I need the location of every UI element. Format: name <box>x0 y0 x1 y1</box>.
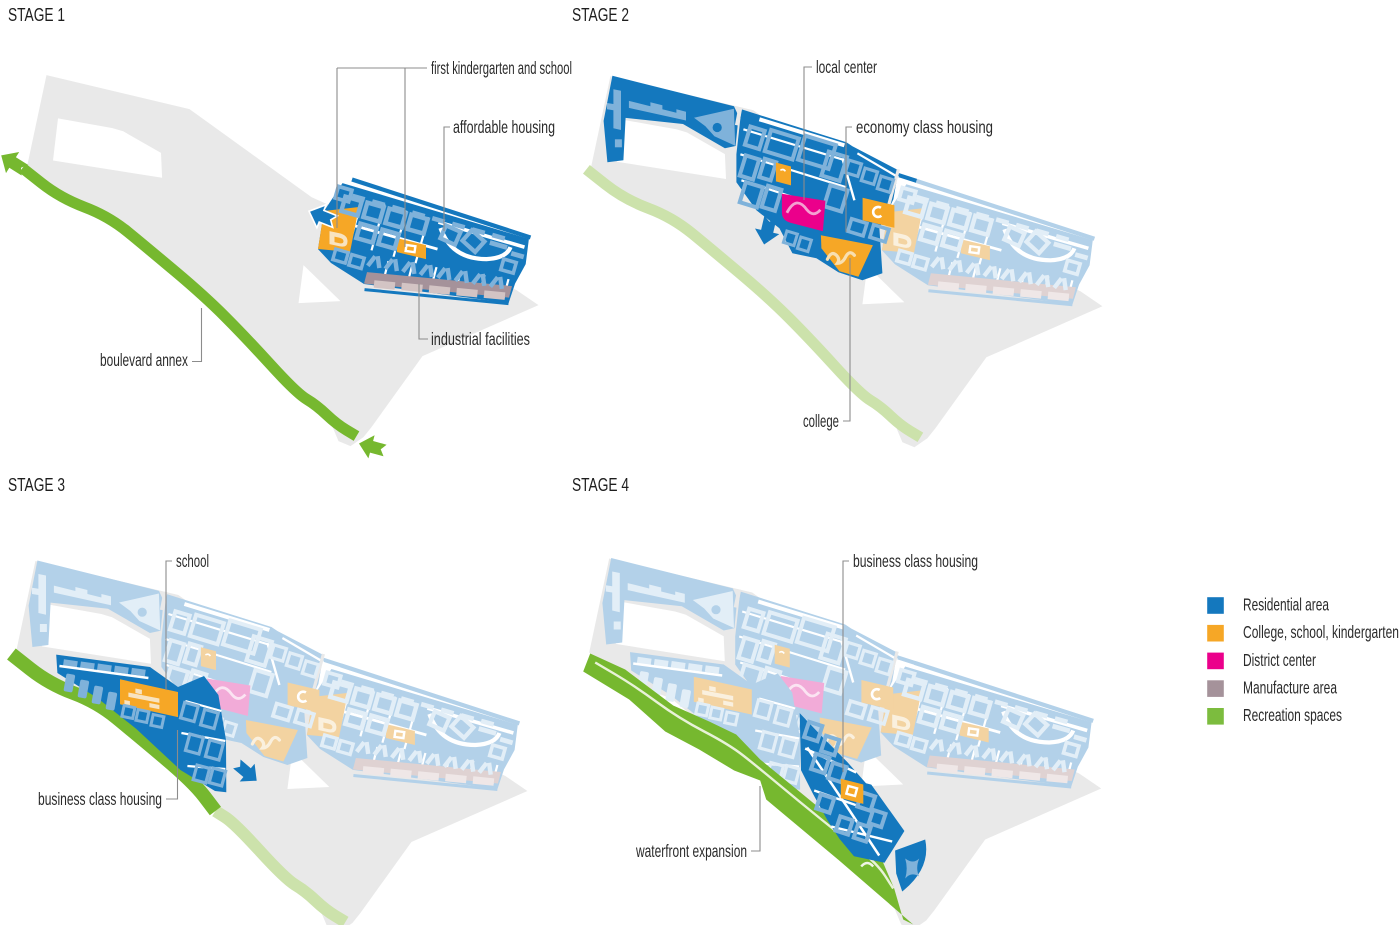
svg-text:industrial facilities: industrial facilities <box>431 329 530 349</box>
svg-text:boulevard annex: boulevard annex <box>100 350 188 370</box>
svg-text:STAGE 4: STAGE 4 <box>572 474 629 495</box>
svg-text:business class housing: business class housing <box>853 551 978 571</box>
svg-text:STAGE 1: STAGE 1 <box>8 4 65 25</box>
svg-text:District center: District center <box>1243 650 1316 670</box>
svg-text:school: school <box>176 551 209 571</box>
svg-text:Residential area: Residential area <box>1243 594 1329 614</box>
svg-text:first kindergarten and school: first kindergarten and school <box>431 58 572 78</box>
svg-text:STAGE 3: STAGE 3 <box>8 474 65 495</box>
svg-text:economy class housing: economy class housing <box>856 117 993 137</box>
svg-text:Recreation spaces: Recreation spaces <box>1243 705 1342 725</box>
svg-text:college: college <box>803 411 839 431</box>
svg-text:Manufacture area: Manufacture area <box>1243 678 1337 698</box>
svg-text:waterfront expansion: waterfront expansion <box>635 841 747 861</box>
svg-text:affordable housing: affordable housing <box>453 117 555 137</box>
svg-text:business class housing: business class housing <box>38 789 162 809</box>
svg-text:local center: local center <box>816 57 877 77</box>
svg-text:STAGE 2: STAGE 2 <box>572 4 629 25</box>
svg-text:College, school, kindergarten: College, school, kindergarten <box>1243 622 1399 642</box>
